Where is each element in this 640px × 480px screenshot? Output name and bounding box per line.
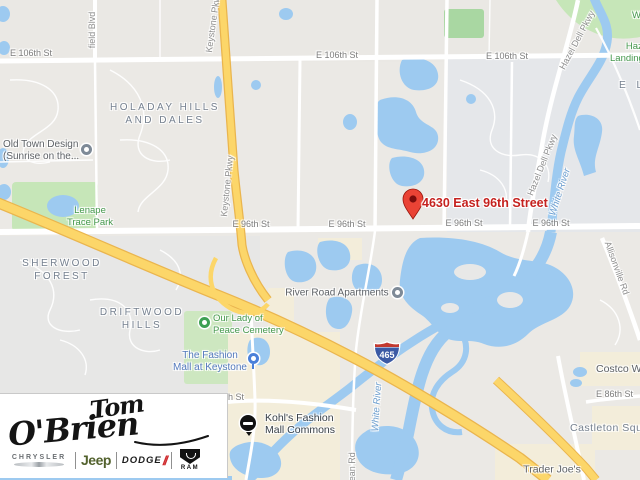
ram-logo: RAM — [177, 449, 203, 471]
street-label: E 96th St — [328, 219, 365, 229]
park-line: Lenape — [67, 205, 113, 217]
ram-shield-icon — [180, 449, 200, 464]
interstate-465-shield-icon: 465 — [372, 340, 402, 366]
location-pin-icon[interactable] — [402, 188, 424, 220]
neighborhood-line: DRIFTWOOD — [100, 306, 184, 319]
poi-label-trader-joes[interactable]: Trader Joe's — [523, 464, 581, 476]
road-label: field Blvd — [87, 12, 97, 49]
road-label: Dean Rd — [347, 452, 357, 480]
svg-text:465: 465 — [379, 350, 394, 360]
map-screen: 465 4630 East 96th Street E 106th St E 1… — [0, 0, 640, 480]
poi-line: Mall Commons — [265, 425, 335, 437]
neighborhood-line: AND DALES — [110, 114, 220, 127]
neighborhood-line: HOLADAY HILLS — [110, 101, 220, 114]
neighborhood-label: E L — [619, 79, 640, 92]
poi-label-river-road-apartments[interactable]: River Road Apartments — [285, 287, 388, 299]
poi-label-fashion-mall[interactable]: The Fashion Mall at Keystone — [173, 350, 247, 373]
street-label: E 86th St — [596, 389, 633, 399]
dealer-logo[interactable]: Tom O'Brien CHRYSLER Jeep DODGE // RAM — [0, 393, 228, 478]
neighborhood-label: DRIFTWOOD HILLS — [100, 306, 184, 332]
dodge-logo: DODGE // — [122, 453, 166, 468]
poi-marker-icon[interactable] — [81, 144, 92, 155]
poi-label-costco[interactable]: Costco Wholesale — [596, 364, 640, 376]
dealer-name-script: Tom O'Brien — [0, 394, 227, 450]
street-label: E 106th St — [10, 48, 52, 58]
kohls-logo-icon[interactable] — [240, 415, 256, 431]
poi-marker-icon[interactable] — [248, 353, 259, 364]
poi-label-old-town-design[interactable]: Old Town Design (Sunrise on the... — [3, 139, 79, 162]
dodge-wordmark: DODGE — [122, 455, 162, 466]
poi-line: Mall at Keystone — [173, 362, 247, 374]
street-label: E 96th St — [532, 218, 569, 228]
neighborhood-line: SHERWOOD — [22, 257, 102, 270]
poi-marker-icon[interactable] — [392, 287, 403, 298]
poi-line: (Sunrise on the... — [3, 151, 79, 163]
street-label: E 106th St — [316, 50, 358, 60]
brand-separator — [171, 452, 172, 469]
chrysler-wordmark: CHRYSLER — [12, 454, 66, 461]
poi-label-kohls-fashion-mall-commons[interactable]: Kohl's Fashion Mall Commons — [265, 413, 335, 436]
street-label: E 96th St — [232, 219, 269, 229]
park-line: Our Lady of — [213, 313, 284, 325]
brand-separator — [116, 452, 117, 469]
park-line: Peace Cemetery — [213, 325, 284, 337]
chrysler-logo: CHRYSLER — [8, 454, 70, 467]
street-label: E 96th St — [445, 218, 482, 228]
ram-wordmark: RAM — [181, 465, 199, 471]
park-line: Landing Park — [598, 53, 640, 65]
poi-line: Old Town Design — [3, 139, 79, 151]
cemetery-marker-icon[interactable] — [199, 317, 210, 328]
park-label: Lenape Trace Park — [67, 205, 113, 229]
park-label: W — [632, 10, 640, 22]
poi-marker-stem — [252, 364, 254, 369]
neighborhood-label: SHERWOOD FOREST — [22, 257, 102, 283]
poi-line: Kohl's Fashion — [265, 413, 335, 425]
neighborhood-label: HOLADAY HILLS AND DALES — [110, 101, 220, 127]
cemetery-label: Our Lady of Peace Cemetery — [213, 313, 284, 337]
chrysler-wing-icon — [14, 462, 64, 467]
poi-label-castleton-square[interactable]: Castleton Square — [570, 422, 640, 435]
brand-separator — [75, 452, 76, 469]
neighborhood-line: HILLS — [100, 319, 184, 332]
signature-swash-icon — [0, 394, 227, 450]
dodge-slashes-icon: // — [163, 453, 166, 468]
park-label: Hazel Landing Park — [598, 41, 640, 65]
street-label: E 106th St — [486, 51, 528, 61]
poi-line: The Fashion — [173, 350, 247, 362]
brand-row: CHRYSLER Jeep DODGE // RAM — [8, 447, 221, 473]
address-label[interactable]: 4630 East 96th Street — [422, 196, 548, 210]
neighborhood-line: FOREST — [22, 270, 102, 283]
street-label: h St — [228, 392, 244, 402]
jeep-logo: Jeep — [81, 452, 111, 468]
park-line: Hazel — [598, 41, 640, 53]
park-line: Trace Park — [67, 217, 113, 229]
